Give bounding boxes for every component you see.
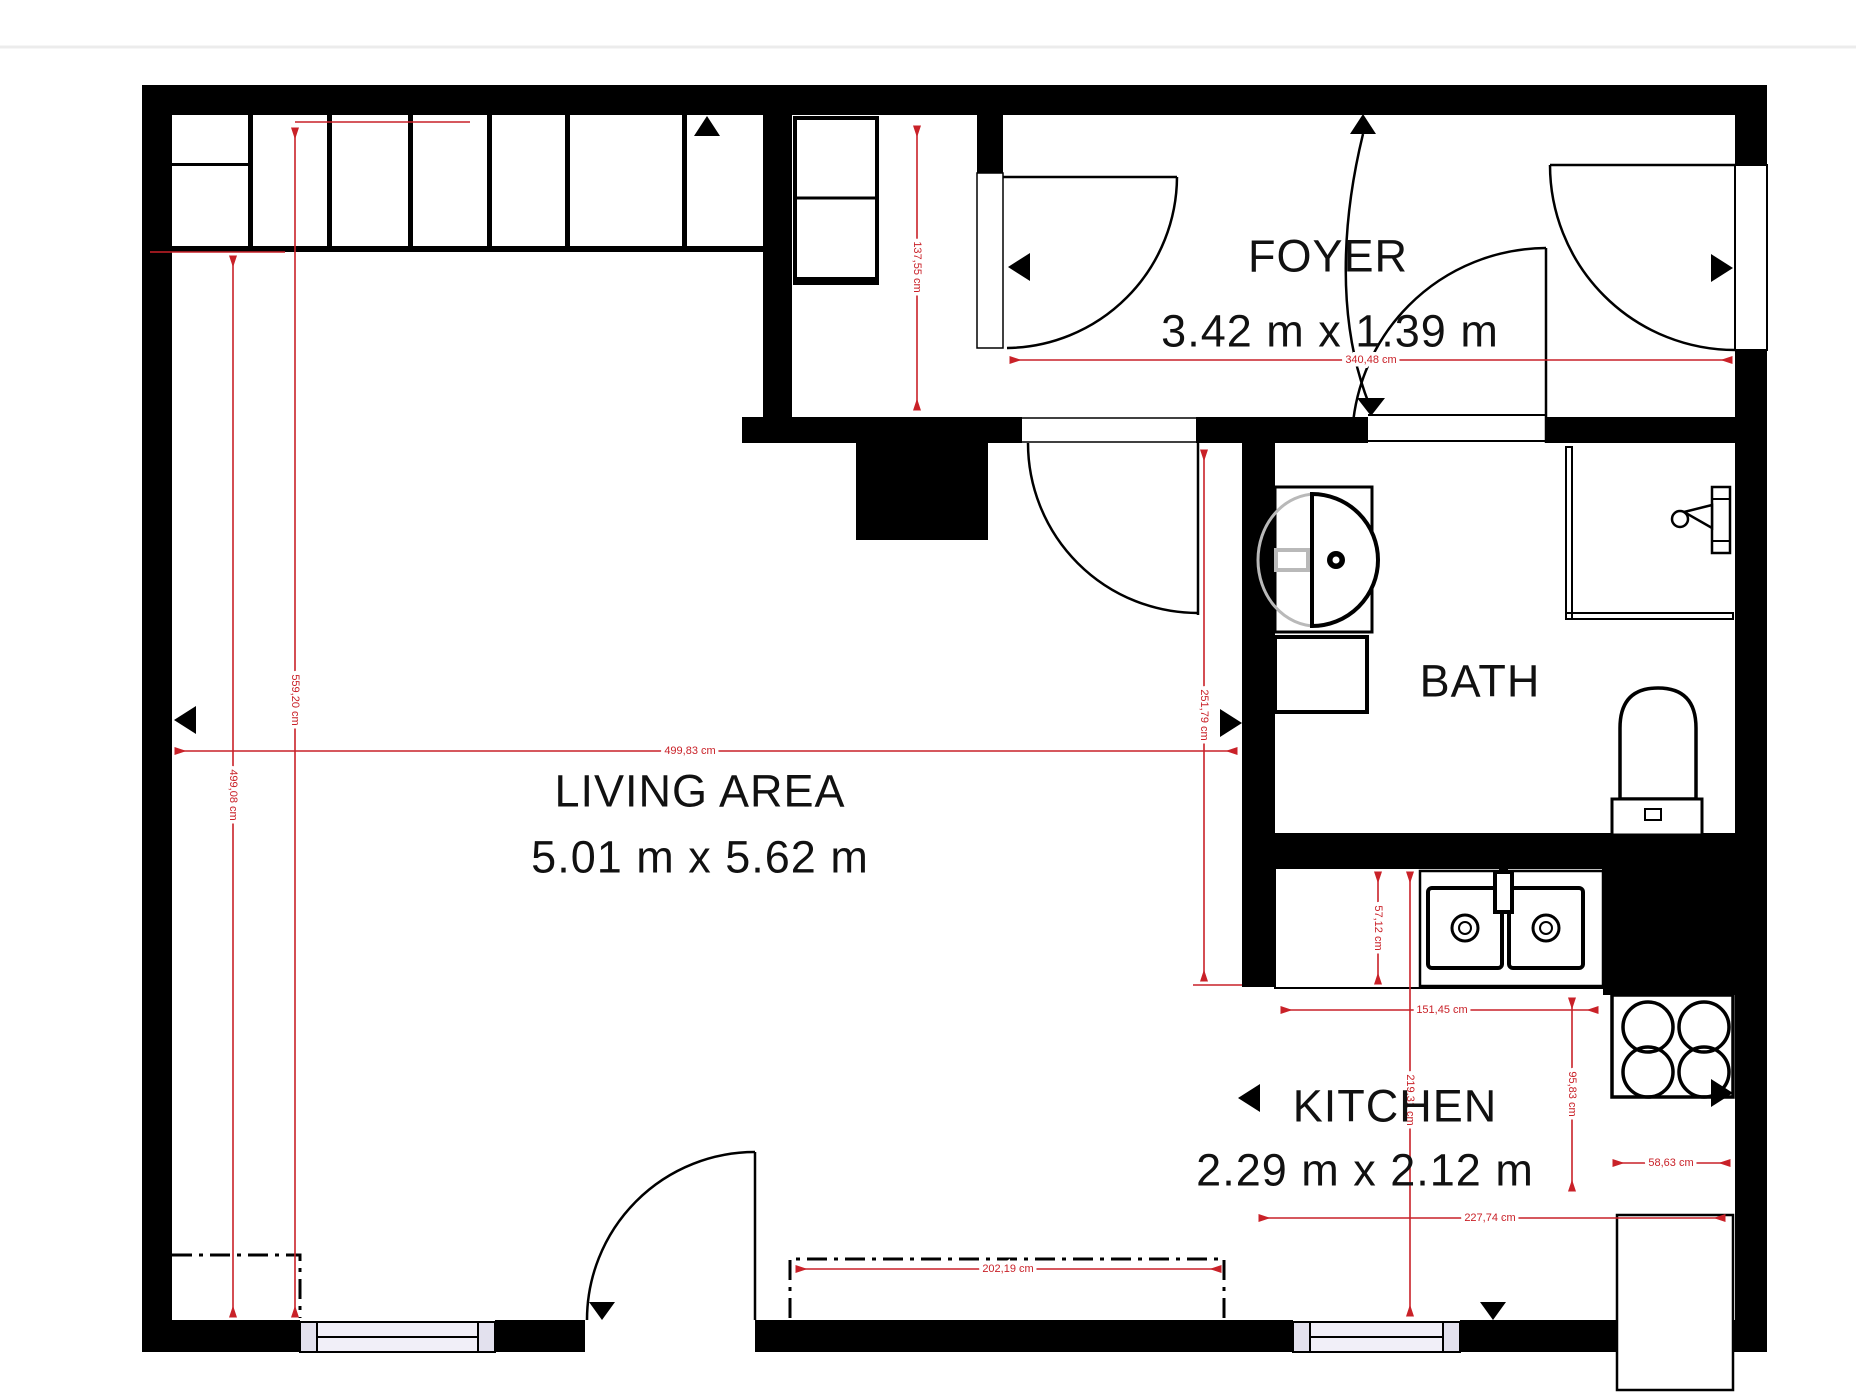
foyer-dims-label: 3.42 m x 1.39 m [1161,306,1499,357]
dim-closet-wall-height: 559,20 cm [289,674,301,725]
kitchen-label: KITCHEN [1293,1081,1498,1132]
living-label: LIVING AREA [554,766,845,817]
living-dims-label: 5.01 m x 5.62 m [531,832,869,883]
bath-passage-opening [1368,413,1547,443]
dim-kitchen-width: 227,74 cm [1464,1212,1515,1224]
dim-living-width: 499,83 cm [664,745,715,757]
foyer-label: FOYER [1248,231,1408,282]
foyer-doorway [977,173,1003,348]
bath-cabinet [1275,637,1367,712]
foyer-door-wall [977,115,1003,173]
toilet [1612,688,1702,835]
shower-head-icon [1712,487,1730,553]
foyer-bottom-wall-mid [1196,417,1368,443]
dim-sofa-width: 202,19 cm [982,1263,1033,1275]
window-left [300,1322,495,1352]
bath-label: BATH [1420,656,1541,707]
foyer-shelf-unit [795,118,877,284]
bath-left-wall [1242,443,1275,987]
window-kitchen [1293,1322,1460,1352]
floor-plan: 559,20 cm 499,08 cm 499,83 cm 340,48 cm … [0,0,1856,1395]
kitchen-dims-label: 2.29 m x 2.12 m [1196,1145,1534,1196]
dim-stove-side-height: 95,83 cm [1566,1071,1578,1116]
dim-living-wall-height: 499,08 cm [227,769,239,820]
dim-counter-width: 151,45 cm [1416,1004,1467,1016]
foyer-bottom-wall-left [742,417,1022,443]
foyer-bottom-wall-right [1547,417,1735,443]
entry-door-opening [1735,165,1767,350]
chimney-block [856,443,988,540]
dim-corridor-height: 251,79 cm [1198,689,1210,740]
balcony-door-opening [585,1320,755,1352]
kitchen-sink [1420,856,1603,986]
dim-stove-side-width: 58,63 cm [1648,1157,1693,1169]
bath-faucet-icon [1276,550,1308,570]
kitchen-corner-block [1603,868,1735,995]
bath-sink [1258,487,1378,632]
page-background [0,0,1856,1395]
dim-counter-depth: 57,12 cm [1372,905,1384,950]
kitchen-tall-cabinet [1617,1215,1733,1390]
corridor-doorway [1022,417,1196,443]
closet-side-wall [763,115,792,443]
dim-foyer-depth: 137,55 cm [911,241,923,292]
